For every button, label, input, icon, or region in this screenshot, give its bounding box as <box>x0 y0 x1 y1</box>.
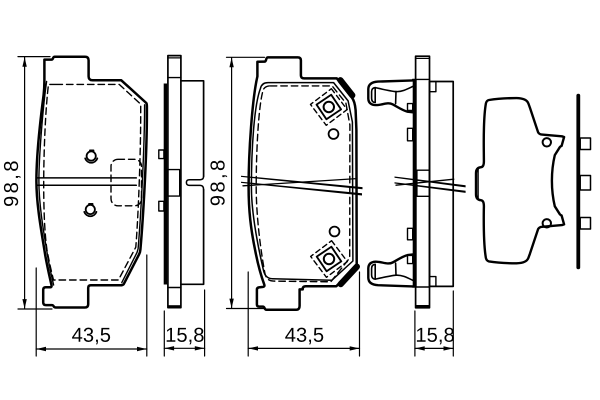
svg-text:98,8: 98,8 <box>1 158 23 207</box>
svg-text:98,8: 98,8 <box>207 157 229 206</box>
svg-text:43,5: 43,5 <box>72 325 111 347</box>
svg-text:15,8: 15,8 <box>165 325 204 347</box>
svg-text:43,5: 43,5 <box>285 325 324 347</box>
svg-text:15,8: 15,8 <box>415 325 454 347</box>
